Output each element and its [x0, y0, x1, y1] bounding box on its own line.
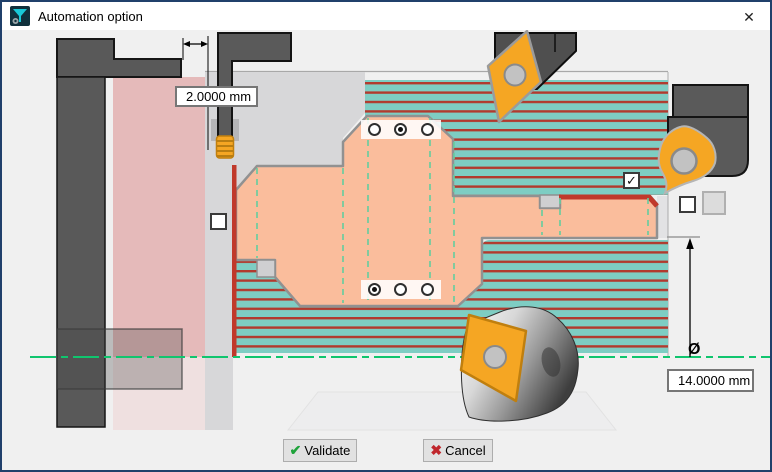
radio-strip-lower — [361, 280, 441, 299]
radio-option[interactable] — [394, 123, 407, 136]
diameter-symbol: Ø — [688, 341, 700, 359]
zone-checkbox-right[interactable] — [679, 196, 696, 213]
relief-notch-top — [540, 195, 560, 208]
arrow-left — [183, 41, 190, 47]
relief-notch-left — [257, 260, 275, 277]
turning-tool-right — [659, 85, 748, 193]
radio-option[interactable] — [421, 283, 434, 296]
machining-preview-canvas — [0, 0, 772, 472]
close-icon[interactable]: ✕ — [738, 6, 760, 28]
arrow-up — [686, 238, 694, 249]
radio-option[interactable] — [394, 283, 407, 296]
right-dimension — [667, 237, 700, 357]
tool-holder — [673, 85, 748, 117]
titlebar: Automation option ✕ — [2, 2, 770, 30]
zone-checkbox-hatch[interactable]: ✓ — [623, 172, 640, 189]
validate-button[interactable]: ✔ Validate — [283, 439, 357, 462]
radio-option[interactable] — [421, 123, 434, 136]
turning-tool-bottom — [461, 307, 578, 421]
check-icon: ✔ — [290, 442, 302, 459]
automation-option-dialog: Automation option ✕ Ø ✓ ✔ Validate ✖ Can… — [0, 0, 772, 472]
diameter-input[interactable] — [667, 369, 754, 392]
cancel-button[interactable]: ✖ Cancel — [423, 439, 493, 462]
clamp-overlay — [57, 329, 182, 389]
app-icon — [10, 6, 30, 26]
arrow-right — [201, 41, 208, 47]
zone-checkbox-left[interactable] — [210, 213, 227, 230]
dialog-title: Automation option — [38, 9, 143, 24]
radio-option[interactable] — [368, 123, 381, 136]
color-swatch-button[interactable] — [702, 191, 726, 215]
offset-input[interactable] — [175, 86, 258, 107]
radio-strip-upper — [361, 120, 441, 139]
radio-option[interactable] — [368, 283, 381, 296]
validate-label: Validate — [304, 443, 350, 458]
cancel-label: Cancel — [445, 443, 485, 458]
x-icon: ✖ — [430, 442, 442, 459]
